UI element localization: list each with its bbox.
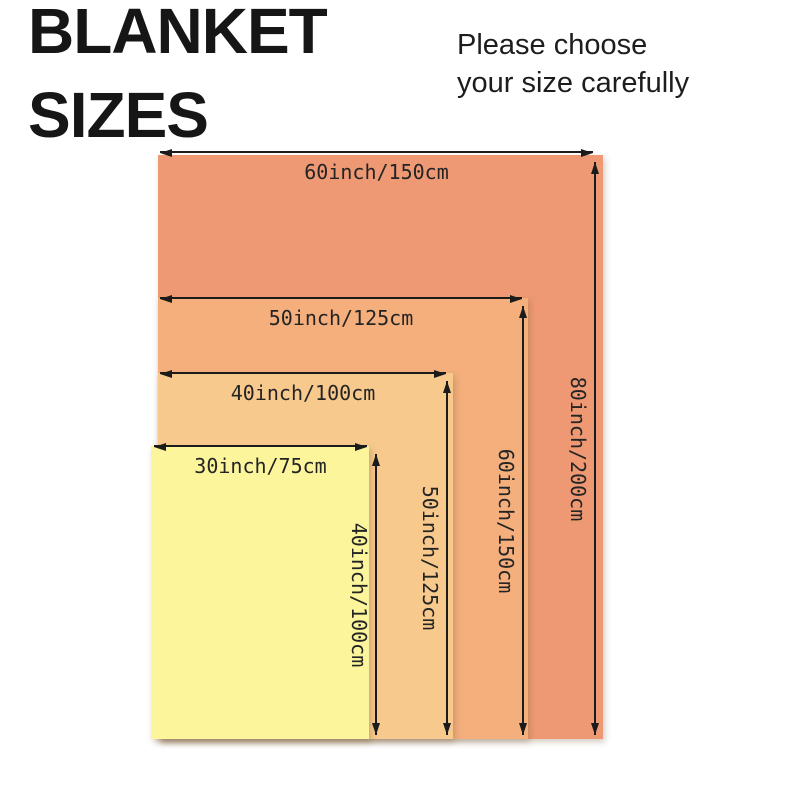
arrow-down-icon [591, 723, 599, 735]
width-label-30inch: 30inch/75cm [194, 454, 326, 478]
height-dimension-80inch: 80inch/200cm [594, 162, 596, 735]
arrow-up-icon [519, 306, 527, 318]
arrow-left-icon [154, 443, 166, 451]
subtitle: Please chooseyour size carefully [457, 26, 689, 102]
width-dimension-40inch: 40inch/100cm [160, 372, 446, 374]
arrow-right-icon [355, 443, 367, 451]
height-label-80inch: 80inch/200cm [566, 376, 590, 521]
arrow-down-icon [372, 723, 380, 735]
title-line-2: SIZES [28, 73, 327, 157]
width-dimension-60inch: 60inch/150cm [160, 151, 593, 153]
arrow-left-icon [160, 149, 172, 157]
arrow-up-icon [372, 454, 380, 466]
height-label-40inch: 40inch/100cm [347, 522, 371, 667]
blanket-rect-30x40 [151, 446, 369, 739]
arrow-left-icon [160, 295, 172, 303]
subtitle-line-2: your size carefully [457, 64, 689, 102]
height-label-50inch: 50inch/125cm [418, 486, 442, 631]
height-dimension-60inch: 60inch/150cm [522, 306, 524, 735]
height-dimension-40inch: 40inch/100cm [375, 454, 377, 735]
arrow-left-icon [160, 370, 172, 378]
width-label-40inch: 40inch/100cm [231, 381, 376, 405]
arrow-up-icon [443, 381, 451, 393]
width-dimension-30inch: 30inch/75cm [154, 445, 367, 447]
height-dimension-50inch: 50inch/125cm [446, 381, 448, 735]
width-dimension-50inch: 50inch/125cm [160, 297, 522, 299]
arrow-right-icon [434, 370, 446, 378]
arrow-down-icon [443, 723, 451, 735]
title-line-1: BLANKET [28, 0, 327, 73]
arrow-down-icon [519, 723, 527, 735]
width-label-50inch: 50inch/125cm [269, 306, 414, 330]
height-label-60inch: 60inch/150cm [494, 448, 518, 593]
width-label-60inch: 60inch/150cm [304, 160, 449, 184]
arrow-right-icon [581, 149, 593, 157]
page-title: BLANKETSIZES [28, 0, 327, 157]
arrow-up-icon [591, 162, 599, 174]
arrow-right-icon [510, 295, 522, 303]
subtitle-line-1: Please choose [457, 26, 689, 64]
